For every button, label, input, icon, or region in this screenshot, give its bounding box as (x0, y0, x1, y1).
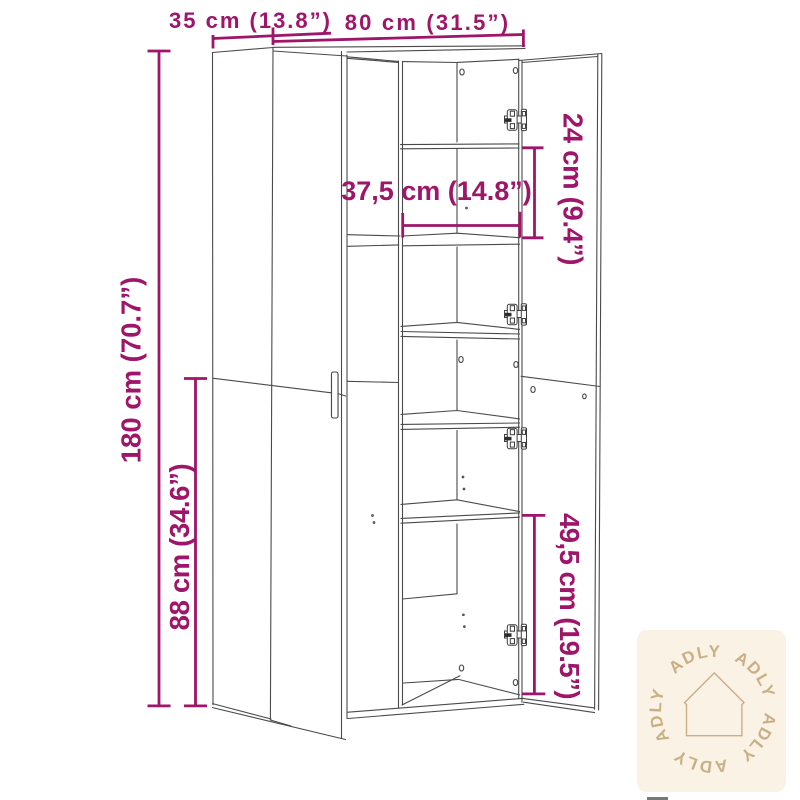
svg-text:88 cm (34.6”): 88 cm (34.6”) (164, 464, 195, 631)
svg-text:24 cm (9.4”): 24 cm (9.4”) (558, 113, 589, 265)
svg-text:49,5 cm (19.5”): 49,5 cm (19.5”) (554, 513, 585, 699)
svg-text:35 cm (13.8”): 35 cm (13.8”) (169, 8, 332, 33)
svg-text:80 cm (31.5”): 80 cm (31.5”) (345, 10, 511, 35)
svg-text:37,5 cm (14.8”): 37,5 cm (14.8”) (341, 176, 532, 206)
svg-text:180 cm (70.7”): 180 cm (70.7”) (116, 277, 147, 464)
